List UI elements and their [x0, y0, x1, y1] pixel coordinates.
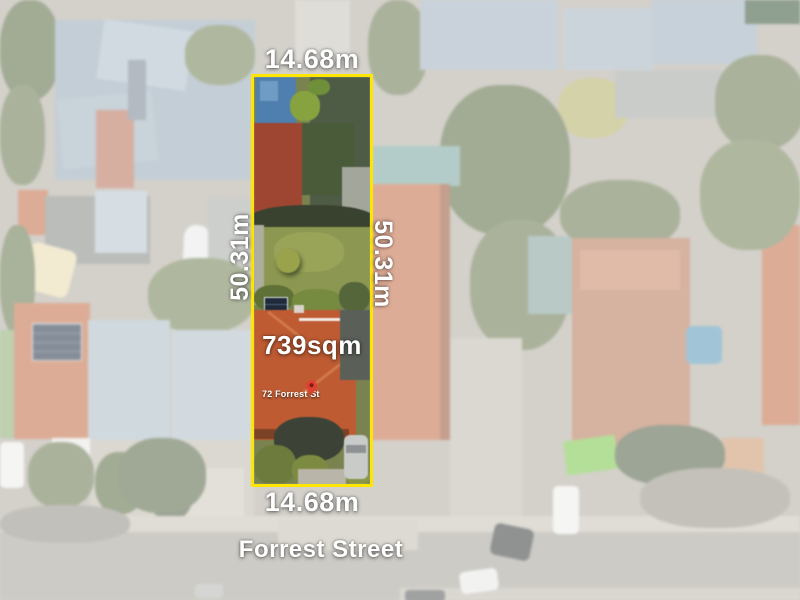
aerial-background	[0, 0, 800, 600]
pool-shape	[686, 326, 722, 364]
car-shape	[195, 584, 223, 598]
shadow-shape	[640, 468, 790, 528]
tree-shape	[118, 438, 206, 513]
roof-shape	[420, 0, 558, 70]
area-label: 739sqm	[254, 331, 370, 359]
tree-shape	[0, 85, 45, 185]
address-annotation: 72 Forrest St	[262, 380, 332, 400]
courtyard-shape	[96, 110, 134, 188]
aerial-property-photo: 14.68m 14.68m 50.31m 50.31m 739sqm 72 Fo…	[0, 0, 800, 600]
roof-shape	[372, 146, 460, 186]
tree-shape	[28, 442, 94, 508]
property-boundary	[251, 74, 373, 487]
width-top-label: 14.68m	[254, 44, 370, 74]
roof-shape	[95, 191, 147, 253]
roof-shape	[128, 60, 146, 120]
width-bottom-label: 14.68m	[254, 487, 370, 517]
solar-panels-shape	[32, 323, 82, 361]
roof-shape	[88, 320, 170, 442]
roof-shape	[440, 184, 450, 440]
tree-shape	[715, 55, 800, 150]
footpath-shape	[400, 588, 800, 600]
driveway-shape	[450, 338, 522, 528]
depth-right-label: 50.31m	[369, 204, 397, 324]
shade-sail-shape	[563, 435, 619, 476]
tree-shape	[368, 0, 428, 95]
car-shape	[553, 486, 579, 534]
tree-shape	[0, 0, 60, 100]
roof-shape	[652, 0, 757, 64]
tree-shape	[700, 140, 800, 250]
roof-shape	[580, 250, 680, 290]
car-shape	[0, 442, 24, 488]
map-pin-icon	[306, 380, 317, 395]
roof-shape	[762, 225, 800, 425]
roof-shape	[745, 0, 800, 24]
roof-shape	[563, 8, 653, 70]
tree-shape	[185, 25, 255, 85]
shadow-shape	[0, 505, 130, 543]
shed-shape	[615, 70, 723, 118]
street-name-label: Forrest Street	[221, 537, 421, 563]
depth-left-label: 50.31m	[226, 197, 254, 317]
car-shape	[405, 590, 445, 600]
